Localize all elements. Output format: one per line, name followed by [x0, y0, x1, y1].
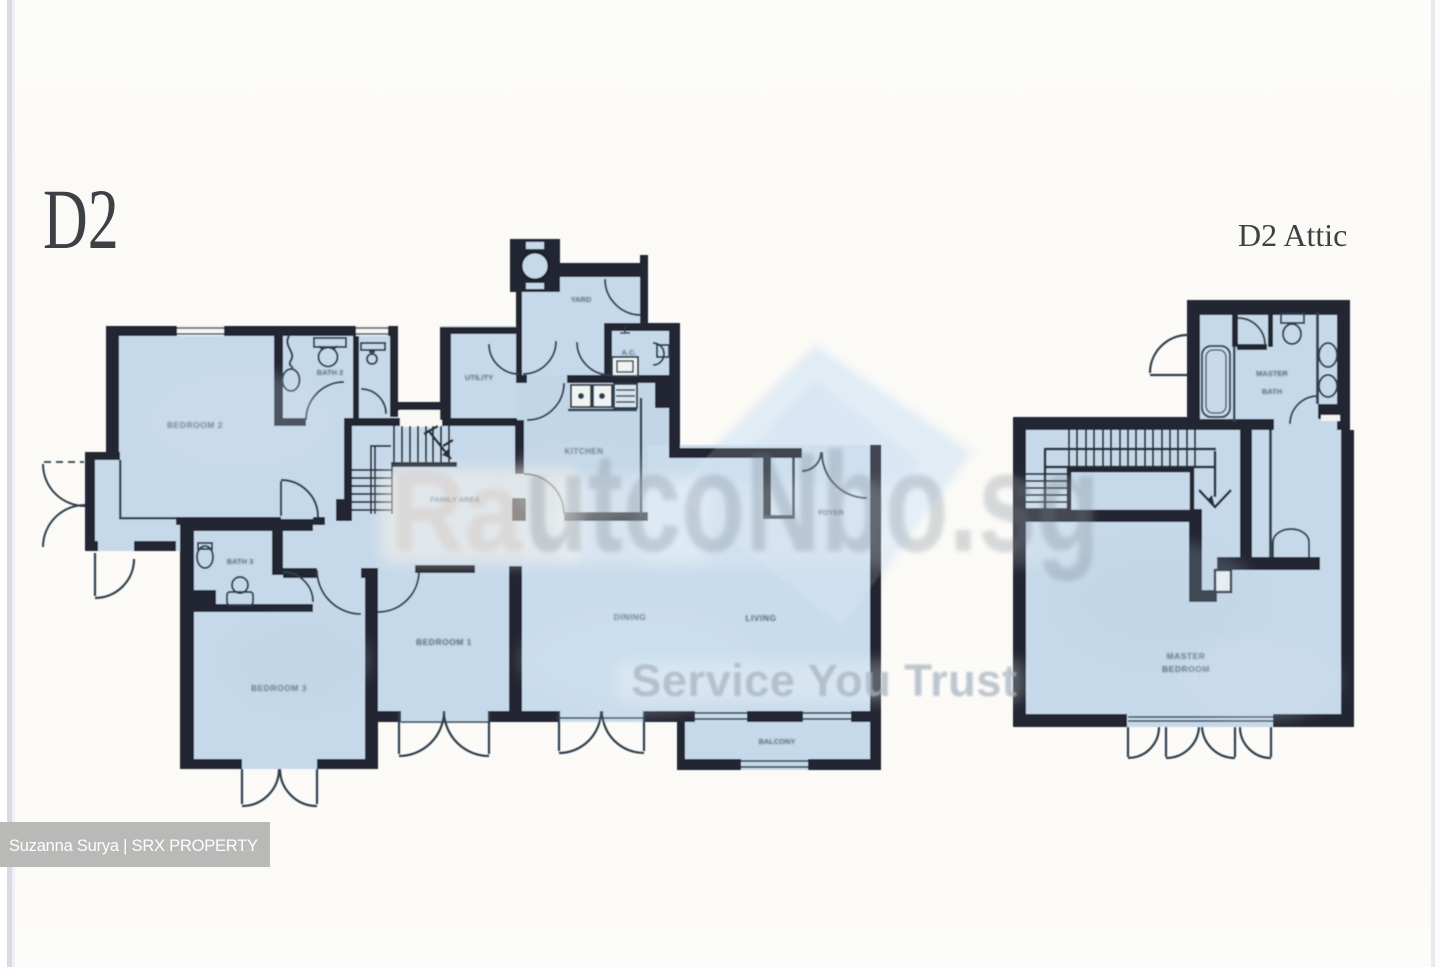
svg-text:BEDROOM 1: BEDROOM 1	[416, 637, 472, 647]
svg-text:LIVING: LIVING	[745, 613, 776, 623]
svg-text:BATH: BATH	[1262, 387, 1282, 396]
svg-text:utcoNbo.sg: utcoNbo.sg	[524, 423, 1100, 582]
svg-text:BATH 3: BATH 3	[227, 557, 254, 566]
svg-text:D2 Attic: D2 Attic	[1238, 217, 1347, 253]
svg-text:Suzanna Surya | SRX PROPERTY: Suzanna Surya | SRX PROPERTY	[9, 837, 258, 855]
svg-text:YARD: YARD	[571, 295, 592, 304]
svg-text:Ra: Ra	[390, 448, 523, 576]
svg-text:A.C.: A.C.	[622, 348, 637, 357]
svg-text:MASTER: MASTER	[1256, 369, 1288, 378]
svg-text:BALCONY: BALCONY	[758, 737, 795, 746]
svg-text:UTILITY: UTILITY	[465, 373, 493, 382]
svg-text:BATH 2: BATH 2	[317, 368, 344, 377]
svg-text:Service You Trust: Service You Trust	[631, 655, 1017, 706]
svg-text:D2: D2	[43, 172, 119, 267]
